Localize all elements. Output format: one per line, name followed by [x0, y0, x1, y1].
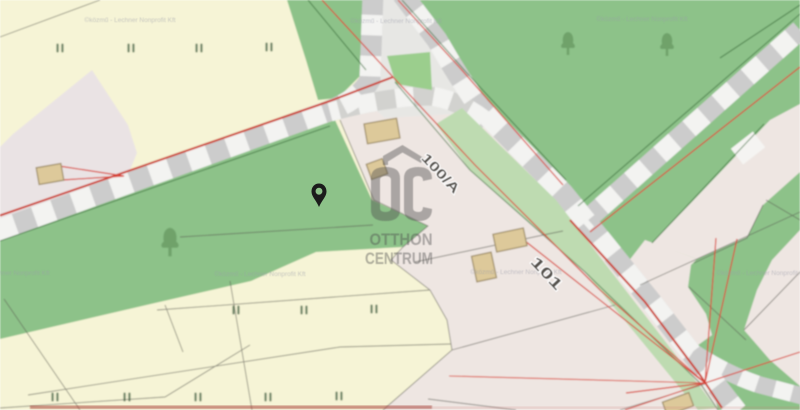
svg-text:©közmű - Lechner Nonprofit Kft: ©közmű - Lechner Nonprofit Kft: [350, 17, 441, 25]
svg-text:©közmű - Lechner Nonprofit Kft: ©közmű - Lechner Nonprofit Kft: [0, 269, 50, 277]
svg-text:©közmű - Lechner Nonprofit Kft: ©közmű - Lechner Nonprofit Kft: [716, 269, 800, 277]
svg-text:©közmű - Lechner Nonprofit Kft: ©közmű - Lechner Nonprofit Kft: [596, 15, 687, 23]
svg-text:©közmű - Lechner Nonprofit Kft: ©közmű - Lechner Nonprofit Kft: [84, 16, 175, 24]
svg-text:CENTRUM: CENTRUM: [365, 249, 433, 268]
svg-text:OTTHON: OTTHON: [370, 230, 433, 249]
svg-text:©közmű - Lechner Nonprofit Kft: ©közmű - Lechner Nonprofit Kft: [214, 270, 305, 278]
